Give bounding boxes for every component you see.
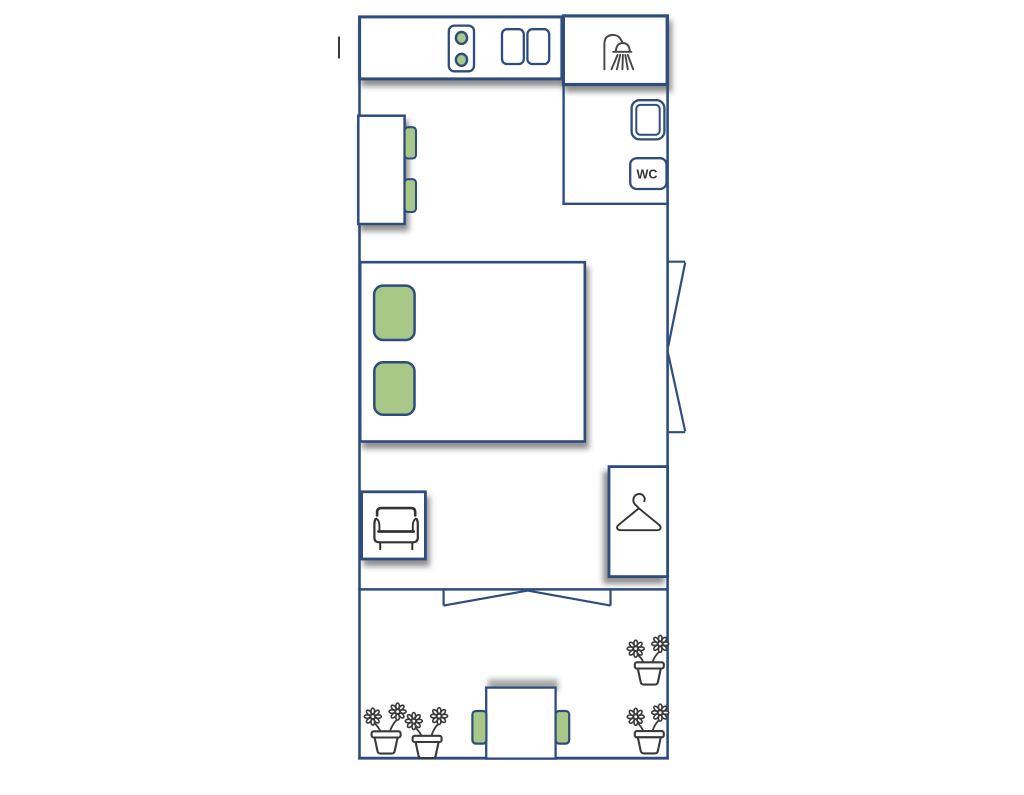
svg-text:WC: WC	[637, 167, 658, 181]
